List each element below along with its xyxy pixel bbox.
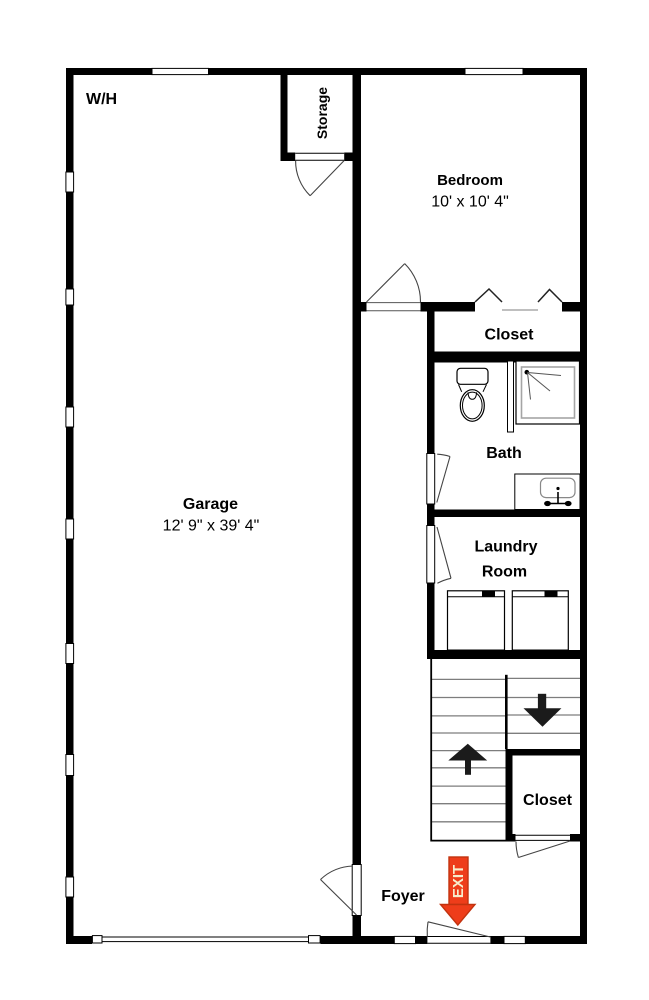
svg-text:12' 9" x 39' 4": 12' 9" x 39' 4" [163,518,260,535]
svg-text:Storage: Storage [314,87,330,139]
svg-text:EXIT: EXIT [450,865,467,898]
svg-text:Garage: Garage [183,496,238,513]
svg-text:10' x 10' 4": 10' x 10' 4" [431,194,509,211]
svg-text:Closet: Closet [523,792,573,809]
svg-text:Foyer: Foyer [381,888,425,905]
svg-text:Room: Room [482,564,527,581]
svg-text:Bath: Bath [486,445,522,462]
svg-text:Bedroom: Bedroom [437,172,503,189]
svg-text:W/H: W/H [86,91,117,108]
svg-text:Laundry: Laundry [474,539,537,556]
svg-text:Closet: Closet [485,327,535,344]
